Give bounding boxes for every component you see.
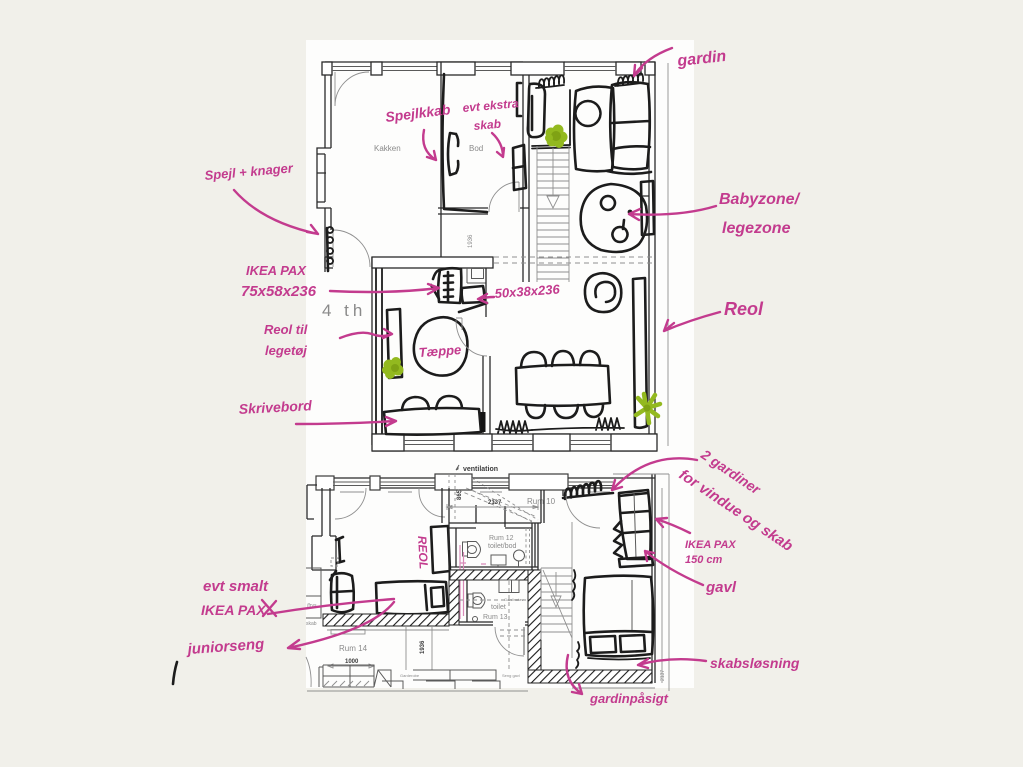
svg-text:Bod: Bod <box>469 144 483 153</box>
svg-text:ventilation: ventilation <box>463 466 498 473</box>
svg-text:1936: 1936 <box>420 640 426 654</box>
svg-text:Reol til: Reol til <box>264 322 308 337</box>
svg-text:Rum 14: Rum 14 <box>339 644 368 653</box>
svg-text:toilet/bod: toilet/bod <box>488 543 517 550</box>
svg-text:Reol: Reol <box>724 299 764 319</box>
svg-text:Rum 12: Rum 12 <box>489 535 514 542</box>
svg-text:2137: 2137 <box>488 500 502 506</box>
svg-text:1000: 1000 <box>345 659 359 665</box>
svg-text:1936: 1936 <box>468 234 474 248</box>
svg-text:REOL: REOL <box>415 535 431 569</box>
svg-text:Seng gavl: Seng gavl <box>502 673 520 678</box>
svg-text:2137: 2137 <box>660 670 666 681</box>
svg-text:IKEA PAX: IKEA PAX <box>246 263 307 278</box>
svg-text:skab: skab <box>306 621 317 627</box>
svg-text:4 th: 4 th <box>322 301 366 320</box>
svg-text:Gardinstav: Gardinstav <box>504 597 523 602</box>
svg-text:Babyzone/: Babyzone/ <box>719 191 801 208</box>
svg-text:legetøj: legetøj <box>265 343 307 358</box>
svg-text:IKEA PAX: IKEA PAX <box>201 602 267 618</box>
svg-text:IKEA PAX: IKEA PAX <box>685 539 736 551</box>
svg-text:legezone: legezone <box>722 220 791 237</box>
svg-text:Rum 13: Rum 13 <box>483 614 508 621</box>
svg-text:gardinpåsigt: gardinpåsigt <box>589 691 669 706</box>
svg-text:150 cm: 150 cm <box>685 554 723 566</box>
svg-text:Tæppe: Tæppe <box>418 342 462 360</box>
svg-text:Garderobe: Garderobe <box>400 673 420 678</box>
svg-text:toilet: toilet <box>491 604 506 611</box>
svg-text:gavl: gavl <box>705 579 737 596</box>
svg-text:evt smalt: evt smalt <box>203 578 269 595</box>
svg-text:75x58x236: 75x58x236 <box>241 283 317 300</box>
svg-text:Kakken: Kakken <box>374 144 401 153</box>
svg-text:skab: skab <box>473 117 501 133</box>
svg-text:skabsløsning: skabsløsning <box>710 655 800 671</box>
